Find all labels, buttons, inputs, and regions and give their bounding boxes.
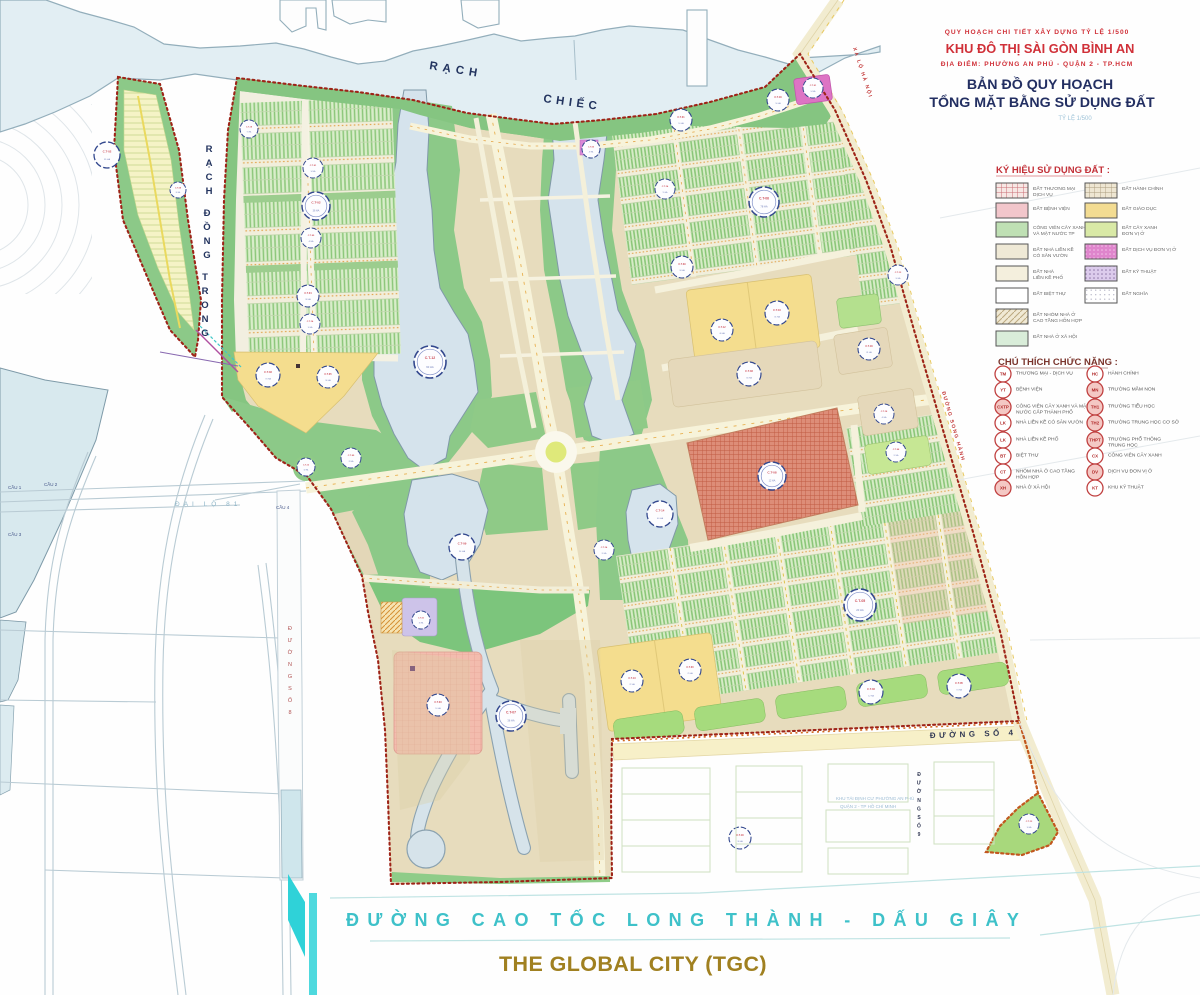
svg-text:ĐẤT NHÀ LIỀN KỀ: ĐẤT NHÀ LIỀN KỀ (1033, 246, 1074, 253)
svg-text:ĐẤT KỸ THUẬT: ĐẤT KỸ THUẬT (1122, 268, 1157, 275)
svg-text:O: O (201, 300, 208, 311)
svg-text:C.T-14: C.T-14 (601, 546, 608, 549)
svg-text:C.T-10: C.T-10 (773, 308, 781, 312)
svg-text:C.T-08: C.T-08 (893, 449, 900, 451)
svg-text:56 HA: 56 HA (746, 377, 752, 380)
svg-text:CAO TẦNG HỖN HỢP: CAO TẦNG HỖN HỢP (1033, 317, 1082, 324)
svg-text:ĐƯỜNG CAO TỐC LONG THÀNH - DẤU: ĐƯỜNG CAO TỐC LONG THÀNH - DẤU GIÂY (346, 909, 1027, 930)
svg-text:C.T-18: C.T-18 (865, 345, 873, 348)
svg-text:94 HA: 94 HA (459, 550, 466, 553)
svg-text:12 HA: 12 HA (769, 479, 776, 482)
svg-text:10 HA: 10 HA (678, 122, 684, 125)
svg-text:Đ: Đ (288, 626, 292, 632)
svg-text:C.T-05: C.T-05 (855, 599, 866, 603)
svg-text:C.T-13: C.T-13 (895, 272, 902, 274)
svg-text:VÀ MẶT NƯỚC TP: VÀ MẶT NƯỚC TP (1033, 230, 1075, 237)
svg-text:C.T-18: C.T-18 (736, 834, 744, 837)
svg-text:C.T-05: C.T-05 (955, 681, 963, 685)
svg-text:CXTP: CXTP (997, 405, 1009, 410)
svg-text:TRƯỜNG TRUNG HỌC CƠ SỞ: TRƯỜNG TRUNG HỌC CƠ SỞ (1108, 419, 1180, 426)
svg-text:31 HA: 31 HA (774, 316, 780, 319)
svg-text:C.T-13: C.T-13 (1026, 821, 1033, 823)
svg-text:NHÀ LIỀN KỀ CÓ SÂN VƯỜN: NHÀ LIỀN KỀ CÓ SÂN VƯỜN (1016, 419, 1084, 426)
svg-text:36 HA: 36 HA (507, 719, 514, 723)
svg-text:C: C (206, 172, 213, 183)
svg-text:30 HA: 30 HA (737, 840, 743, 843)
svg-text:TRƯỜNG PHỔ THÔNG: TRƯỜNG PHỔ THÔNG (1108, 436, 1161, 443)
svg-text:C.T-03: C.T-03 (745, 369, 753, 373)
svg-text:C.T-14: C.T-14 (656, 509, 665, 513)
svg-text:TRƯỜNG MẦM NON: TRƯỜNG MẦM NON (1108, 386, 1156, 393)
svg-text:G: G (203, 250, 210, 261)
svg-text:CẦU 2: CẦU 2 (44, 481, 58, 487)
svg-text:ĐẤT NHÀ Ở XÃ HỘI: ĐẤT NHÀ Ở XÃ HỘI (1033, 333, 1077, 340)
svg-text:C.T-09: C.T-09 (308, 235, 315, 237)
svg-text:N: N (204, 236, 211, 247)
svg-text:Ồ: Ồ (203, 221, 210, 233)
svg-text:70 HA: 70 HA (265, 378, 271, 381)
svg-text:C.T-06: C.T-06 (759, 196, 769, 200)
svg-text:CẦU 3: CẦU 3 (8, 531, 22, 537)
svg-text:HC: HC (1092, 372, 1099, 377)
svg-text:Đ: Đ (917, 772, 921, 778)
svg-text:ĐẤT NHÀ: ĐẤT NHÀ (1033, 268, 1055, 275)
svg-text:81 HA: 81 HA (866, 351, 872, 354)
svg-text:96 HA: 96 HA (325, 379, 331, 382)
svg-text:HÀNH CHÍNH: HÀNH CHÍNH (1108, 370, 1139, 377)
svg-text:C.T-00: C.T-00 (686, 666, 694, 669)
svg-text:40 HA: 40 HA (719, 332, 725, 335)
svg-text:BT: BT (1000, 454, 1006, 459)
svg-text:C.T-14: C.T-14 (662, 185, 669, 188)
svg-text:C.T-08: C.T-08 (767, 470, 777, 474)
svg-text:C.T-03: C.T-03 (434, 701, 442, 704)
svg-text:KÝ HIỆU SỬ DỤNG ĐẤT :: KÝ HIỆU SỬ DỤNG ĐẤT : (996, 164, 1110, 176)
svg-text:50 HA: 50 HA (775, 102, 781, 105)
svg-text:ĐẤT NHÓM NHÀ Ở: ĐẤT NHÓM NHÀ Ở (1033, 311, 1075, 318)
svg-text:DỊCH VỤ ĐƠN VỊ Ở: DỊCH VỤ ĐƠN VỊ Ở (1108, 468, 1153, 475)
svg-text:ĐẤT NGHĨA: ĐẤT NGHĨA (1122, 290, 1149, 297)
svg-text:THE GLOBAL CITY (TGC): THE GLOBAL CITY (TGC) (499, 952, 767, 976)
svg-text:CHÚ THÍCH CHỨC NĂNG :: CHÚ THÍCH CHỨC NĂNG : (998, 356, 1118, 368)
svg-text:ĐẠI LỘ 81: ĐẠI LỘ 81 (175, 499, 241, 508)
svg-text:N: N (288, 662, 292, 668)
svg-text:C.T-09: C.T-09 (458, 542, 467, 546)
svg-text:12 HA: 12 HA (868, 695, 874, 698)
svg-text:ĐẤT HÀNH CHÍNH: ĐẤT HÀNH CHÍNH (1122, 185, 1163, 192)
svg-text:KT: KT (1092, 486, 1098, 491)
svg-text:S: S (288, 686, 292, 692)
svg-text:BẢN ĐỒ QUY HOẠCH: BẢN ĐỒ QUY HOẠCH (967, 75, 1113, 93)
svg-text:QUẬN 2 - TP HỒ CHÍ MINH: QUẬN 2 - TP HỒ CHÍ MINH (840, 803, 896, 809)
svg-text:98 HA: 98 HA (305, 298, 311, 301)
svg-text:10 HA: 10 HA (435, 707, 441, 710)
svg-text:40 HA: 40 HA (657, 517, 664, 520)
svg-text:Ạ: Ạ (206, 158, 213, 169)
svg-text:N: N (202, 314, 209, 325)
svg-text:C.T-03: C.T-03 (264, 370, 272, 374)
svg-text:THPT: THPT (1089, 438, 1101, 443)
svg-text:C.T-05: C.T-05 (324, 373, 332, 376)
svg-text:TỶ LỆ 1/500: TỶ LỆ 1/500 (1058, 114, 1092, 122)
svg-text:DV: DV (1092, 470, 1098, 475)
svg-text:ĐƠN VỊ Ở: ĐƠN VỊ Ở (1122, 230, 1144, 237)
svg-text:TM: TM (1000, 372, 1007, 377)
svg-text:MN: MN (1092, 388, 1099, 393)
svg-text:G: G (201, 328, 208, 339)
svg-text:60 HA: 60 HA (426, 365, 434, 369)
svg-text:34 HA: 34 HA (679, 269, 685, 272)
svg-text:LK: LK (1000, 421, 1007, 426)
svg-text:C.T-18: C.T-18 (246, 126, 253, 128)
svg-text:TH1: TH1 (1091, 405, 1100, 410)
svg-text:R: R (206, 144, 213, 155)
svg-text:ĐẤT GIÁO DỤC: ĐẤT GIÁO DỤC (1122, 205, 1157, 212)
svg-text:C.T-09: C.T-09 (678, 263, 686, 266)
svg-text:C.T-07: C.T-07 (506, 710, 516, 714)
svg-text:G: G (288, 674, 292, 680)
svg-text:XH: XH (1000, 486, 1006, 491)
svg-text:C.T-01: C.T-01 (418, 617, 425, 619)
svg-text:C.T-03: C.T-03 (867, 687, 875, 691)
svg-text:20 HA: 20 HA (856, 608, 864, 612)
svg-text:78 HA: 78 HA (760, 205, 767, 209)
svg-text:CÓ SÂN VƯỜN: CÓ SÂN VƯỜN (1033, 252, 1068, 259)
svg-text:THƯƠNG MẠI - DỊCH VỤ: THƯƠNG MẠI - DỊCH VỤ (1016, 371, 1073, 377)
svg-text:G: G (917, 806, 921, 812)
svg-text:TỔNG MẶT BẰNG SỬ DỤNG ĐẤT: TỔNG MẶT BẰNG SỬ DỤNG ĐẤT (929, 93, 1155, 111)
svg-text:KHU ĐÔ THỊ SÀI GÒN BÌNH AN: KHU ĐÔ THỊ SÀI GÒN BÌNH AN (946, 41, 1135, 56)
svg-text:35 HA: 35 HA (104, 158, 111, 161)
svg-text:C.T-02: C.T-02 (311, 200, 321, 204)
svg-text:Ờ: Ờ (917, 787, 922, 795)
svg-text:74 HA: 74 HA (956, 689, 962, 692)
svg-text:C.T-18: C.T-18 (881, 411, 888, 413)
svg-text:Ố: Ố (288, 697, 293, 704)
svg-text:NƯỚC CẤP THÀNH PHỐ: NƯỚC CẤP THÀNH PHỐ (1016, 409, 1073, 416)
svg-text:ĐẤT DỊCH VỤ ĐƠN VỊ Ở: ĐẤT DỊCH VỤ ĐƠN VỊ Ở (1122, 246, 1176, 253)
svg-text:LK: LK (1000, 438, 1007, 443)
svg-text:C.T-13: C.T-13 (303, 464, 310, 466)
svg-text:C.T-01: C.T-01 (677, 116, 685, 119)
svg-text:H: H (206, 186, 213, 197)
svg-text:ĐẤT THƯƠNG MẠI: ĐẤT THƯƠNG MẠI (1033, 185, 1075, 192)
svg-text:LIỀN KỀ PHỐ: LIỀN KỀ PHỐ (1033, 274, 1063, 281)
svg-text:CX: CX (1092, 454, 1098, 459)
svg-text:36 HA: 36 HA (313, 209, 320, 212)
svg-text:R: R (202, 286, 209, 297)
svg-text:C.T-01: C.T-01 (810, 85, 817, 87)
svg-text:C.T-01: C.T-01 (310, 165, 317, 167)
svg-text:YT: YT (1000, 388, 1006, 393)
svg-text:Ờ: Ờ (288, 649, 293, 656)
svg-text:70 HA: 70 HA (687, 672, 693, 675)
svg-text:C.T-18: C.T-18 (774, 96, 782, 99)
svg-text:TRUNG HỌC: TRUNG HỌC (1108, 443, 1138, 449)
svg-text:Ư: Ư (288, 638, 293, 644)
svg-text:HỖN HỢP: HỖN HỢP (1016, 474, 1039, 481)
svg-text:C.T-04: C.T-04 (304, 292, 312, 295)
svg-text:C.T-00: C.T-00 (588, 146, 595, 148)
svg-text:ĐỊA ĐIỂM: PHƯỜNG AN PHÚ - QUẬN: ĐỊA ĐIỂM: PHƯỜNG AN PHÚ - QUẬN 2 - TP.HC… (941, 59, 1134, 68)
svg-text:C.T-14: C.T-14 (307, 320, 314, 323)
svg-text:C.T-08: C.T-08 (175, 188, 182, 190)
svg-text:TH2: TH2 (1091, 421, 1100, 426)
svg-text:CẦU 4: CẦU 4 (276, 504, 290, 510)
svg-text:C.T-12: C.T-12 (425, 356, 436, 360)
svg-text:CẦU 1: CẦU 1 (8, 484, 22, 490)
svg-text:KHU TÁI ĐỊNH CƯ PHƯỜNG AN PHÚ: KHU TÁI ĐỊNH CƯ PHƯỜNG AN PHÚ (836, 795, 914, 801)
svg-text:NHÓM NHÀ Ở CAO TẦNG: NHÓM NHÀ Ở CAO TẦNG (1016, 468, 1075, 475)
svg-text:N: N (917, 798, 921, 804)
svg-text:9: 9 (918, 832, 921, 838)
svg-text:22 HA: 22 HA (629, 683, 635, 686)
svg-text:CT: CT (1000, 470, 1006, 475)
svg-text:8: 8 (288, 710, 291, 716)
svg-text:C.T-02: C.T-02 (103, 150, 112, 154)
svg-text:Đ: Đ (204, 208, 211, 219)
svg-text:ĐẤT CÂY XANH: ĐẤT CÂY XANH (1122, 224, 1158, 231)
svg-text:DỊCH VỤ: DỊCH VỤ (1033, 192, 1053, 198)
svg-text:NHÀ LIỀN KỀ PHỐ: NHÀ LIỀN KỀ PHỐ (1016, 436, 1059, 443)
svg-text:NHÀ Ở XÃ HỘI: NHÀ Ở XÃ HỘI (1016, 484, 1050, 491)
svg-text:KHU KỸ THUẬT: KHU KỸ THUẬT (1108, 484, 1144, 491)
svg-text:T: T (202, 272, 208, 283)
svg-text:TRƯỜNG TIỂU HỌC: TRƯỜNG TIỂU HỌC (1108, 403, 1155, 410)
svg-text:C.T-12: C.T-12 (718, 326, 726, 329)
svg-text:C.T-13: C.T-13 (628, 677, 636, 680)
svg-text:C.T-09: C.T-09 (348, 455, 355, 457)
svg-text:Ố: Ố (917, 823, 921, 830)
